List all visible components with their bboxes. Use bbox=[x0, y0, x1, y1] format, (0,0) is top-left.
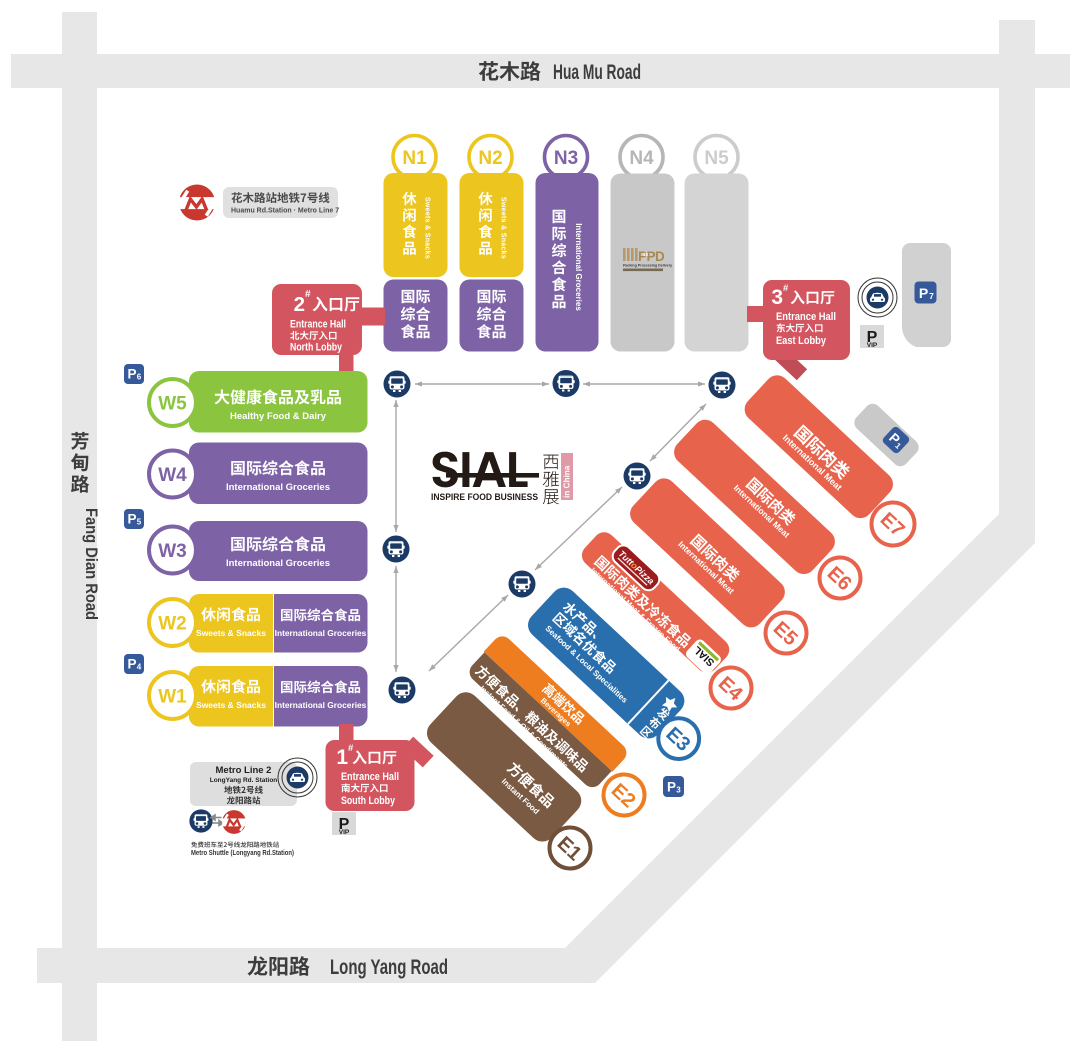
svg-text:Packing Processing Delivery: Packing Processing Delivery bbox=[623, 264, 672, 268]
svg-text:P: P bbox=[127, 367, 136, 382]
svg-text:6: 6 bbox=[137, 373, 142, 382]
svg-text:P: P bbox=[127, 657, 136, 672]
svg-text:International Groceries: International Groceries bbox=[226, 482, 330, 493]
svg-text:Huamu Rd.Station · Metro Line: Huamu Rd.Station · Metro Line 7 bbox=[231, 208, 339, 215]
svg-text:Metro Line 2: Metro Line 2 bbox=[216, 765, 272, 776]
svg-text:East Lobby: East Lobby bbox=[776, 335, 827, 347]
svg-text:N1: N1 bbox=[402, 148, 427, 169]
svg-text:5: 5 bbox=[137, 518, 142, 527]
svg-text:North Lobby: North Lobby bbox=[290, 342, 343, 354]
svg-text:VIP: VIP bbox=[867, 342, 878, 349]
svg-text:LongYang Rd. Station: LongYang Rd. Station bbox=[210, 777, 278, 784]
svg-text:W5: W5 bbox=[158, 393, 187, 414]
svg-text:Healthy Food & Dairy: Healthy Food & Dairy bbox=[230, 411, 327, 422]
svg-text:3: 3 bbox=[676, 786, 681, 795]
svg-text:38: 38 bbox=[643, 252, 649, 257]
svg-text:7: 7 bbox=[929, 291, 934, 301]
svg-text:in China: in China bbox=[563, 465, 572, 498]
svg-text:International Groceries: International Groceries bbox=[574, 223, 583, 311]
svg-text:Hua Mu Road: Hua Mu Road bbox=[553, 61, 641, 84]
svg-text:Entrance Hall: Entrance Hall bbox=[341, 771, 399, 783]
svg-text:International Groceries: International Groceries bbox=[275, 700, 367, 710]
svg-text:3: 3 bbox=[771, 286, 783, 309]
svg-text:International Groceries: International Groceries bbox=[275, 628, 367, 638]
svg-text:South Lobby: South Lobby bbox=[341, 795, 396, 807]
svg-text:#: # bbox=[348, 743, 354, 754]
svg-text:N2: N2 bbox=[478, 148, 502, 169]
svg-text:#: # bbox=[305, 289, 311, 300]
svg-text:Sweets & Snacks: Sweets & Snacks bbox=[500, 197, 507, 259]
svg-text:International Groceries: International Groceries bbox=[226, 558, 330, 569]
svg-text:Sweets & Snacks: Sweets & Snacks bbox=[424, 197, 431, 259]
svg-text:#: # bbox=[783, 283, 789, 294]
svg-text:4: 4 bbox=[137, 663, 142, 672]
svg-text:Entrance Hall: Entrance Hall bbox=[290, 319, 346, 331]
svg-text:P: P bbox=[919, 285, 928, 301]
svg-text:INSPIRE FOOD BUSINESS: INSPIRE FOOD BUSINESS bbox=[431, 492, 538, 502]
svg-text:W2: W2 bbox=[158, 613, 187, 634]
svg-text:W3: W3 bbox=[158, 541, 187, 562]
svg-text:W1: W1 bbox=[158, 686, 187, 707]
svg-text:Long Yang Road: Long Yang Road bbox=[330, 956, 448, 979]
svg-text:Entrance Hall: Entrance Hall bbox=[776, 311, 836, 323]
svg-text:Sweets & Snacks: Sweets & Snacks bbox=[196, 700, 266, 710]
svg-text:W4: W4 bbox=[158, 465, 187, 486]
svg-text:2: 2 bbox=[294, 293, 305, 316]
svg-text:N5: N5 bbox=[704, 148, 729, 169]
svg-text:1: 1 bbox=[336, 746, 348, 769]
svg-text:P: P bbox=[127, 512, 136, 527]
svg-text:N3: N3 bbox=[554, 148, 578, 169]
svg-text:P: P bbox=[667, 780, 676, 795]
svg-text:N4: N4 bbox=[629, 148, 654, 169]
svg-text:VIP: VIP bbox=[339, 829, 350, 836]
svg-text:Sweets & Snacks: Sweets & Snacks bbox=[196, 628, 266, 638]
svg-text:Fang Dian Road: Fang Dian Road bbox=[82, 508, 101, 620]
svg-text:Metro Shuttle (Longyang Rd.Sta: Metro Shuttle (Longyang Rd.Station) bbox=[191, 850, 294, 857]
